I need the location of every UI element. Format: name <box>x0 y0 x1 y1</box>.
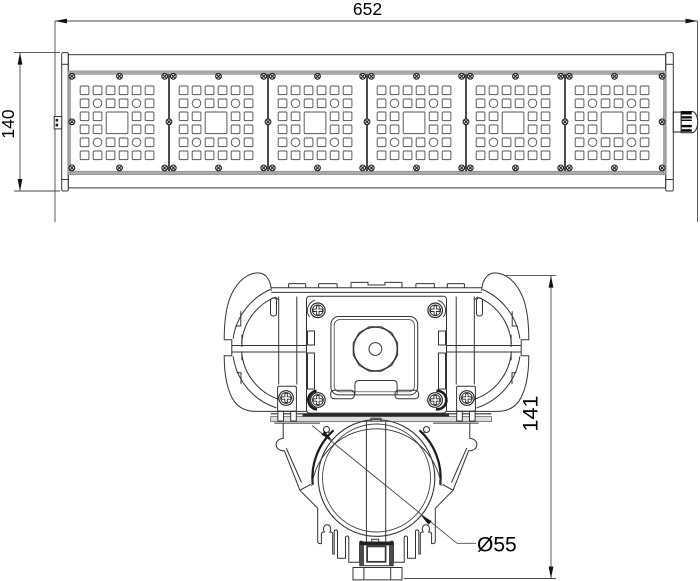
svg-text:652: 652 <box>353 0 382 19</box>
svg-text:140: 140 <box>0 109 18 138</box>
svg-text:Ø55: Ø55 <box>477 534 517 557</box>
svg-text:141: 141 <box>519 396 543 432</box>
